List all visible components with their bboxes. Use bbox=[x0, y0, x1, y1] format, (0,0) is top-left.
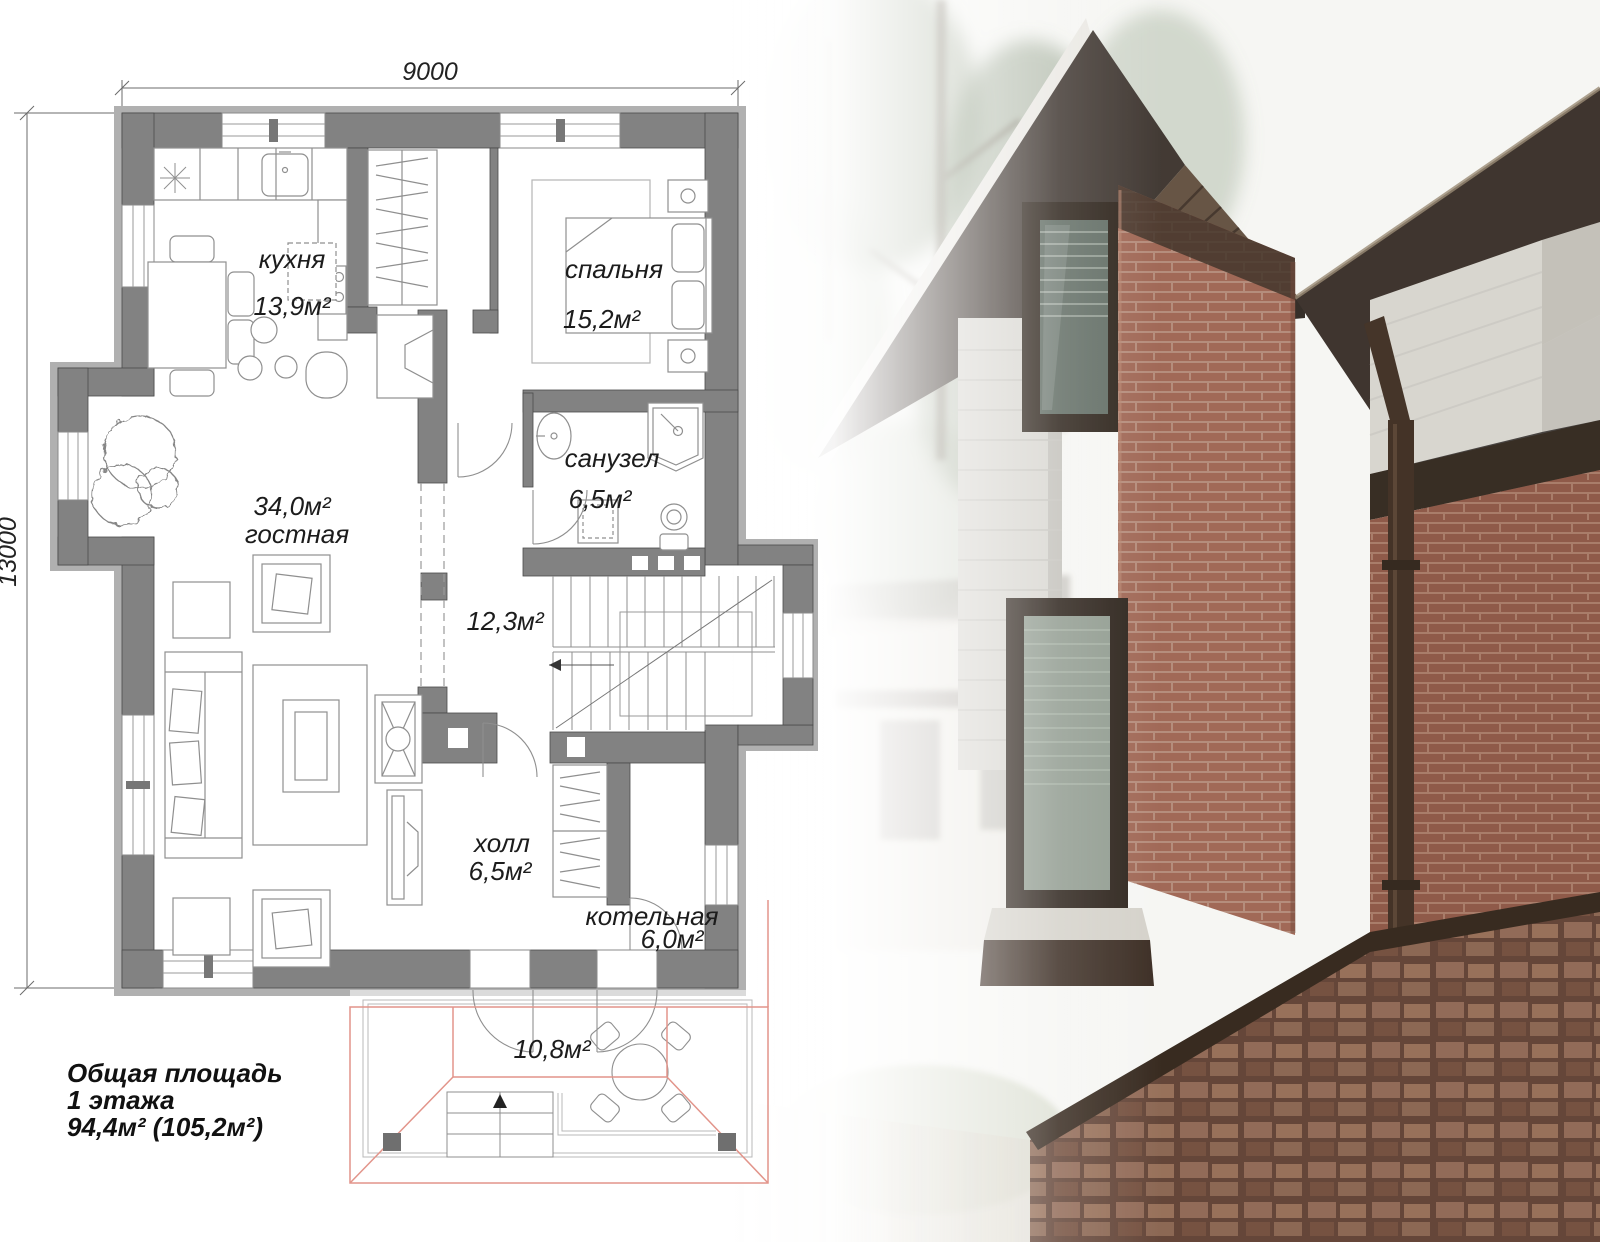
label-kitchen: кухня bbox=[259, 244, 326, 274]
floor-plan-svg: 9000 13000 bbox=[0, 0, 880, 1242]
floor-plan: 9000 13000 bbox=[0, 0, 880, 1242]
label-bedroom: спальня bbox=[565, 254, 663, 284]
armchair bbox=[253, 555, 330, 632]
sofa bbox=[165, 652, 242, 858]
dim-height-label: 13000 bbox=[0, 517, 22, 587]
label-bedroom-area: 15,2м² bbox=[563, 304, 641, 334]
hall-wardrobe bbox=[553, 765, 607, 897]
summary-line1: Общая площадь bbox=[67, 1060, 283, 1087]
bathroom-fixtures bbox=[536, 403, 703, 550]
terrace-steps bbox=[447, 1092, 553, 1157]
terrace-post bbox=[383, 1133, 401, 1151]
dim-width-label: 9000 bbox=[402, 58, 458, 86]
nightstand bbox=[668, 340, 708, 372]
stairs-direction-arrow bbox=[549, 659, 561, 671]
page: 9000 13000 bbox=[0, 0, 1600, 1242]
closet-wardrobe bbox=[368, 150, 437, 398]
label-hall-area: 6,5м² bbox=[469, 856, 533, 886]
summary-line3: 94,4м² (105,2м²) bbox=[67, 1114, 283, 1141]
label-boiler-area: 6,0м² bbox=[641, 924, 705, 954]
label-living: гостная bbox=[245, 519, 349, 549]
side-table bbox=[173, 898, 230, 955]
label-bathroom: санузел bbox=[565, 443, 660, 473]
stair-bay-floor bbox=[738, 565, 783, 725]
label-stairs-area: 12,3м² bbox=[466, 606, 544, 636]
label-hall: холл bbox=[472, 828, 530, 858]
label-kitchen-area: 13,9м² bbox=[253, 291, 331, 321]
toilet bbox=[660, 504, 688, 550]
coffee-table bbox=[253, 665, 367, 845]
label-living-area: 34,0м² bbox=[253, 491, 331, 521]
lamp-symbol bbox=[160, 163, 190, 193]
total-area-summary: Общая площадь 1 этажа 94,4м² (105,2м²) bbox=[67, 1060, 283, 1141]
fireplace bbox=[375, 695, 422, 783]
label-bathroom-area: 6,5м² bbox=[569, 484, 633, 514]
armchair bbox=[253, 890, 330, 967]
label-terrace-area: 10,8м² bbox=[513, 1034, 591, 1064]
terrace-post bbox=[718, 1133, 736, 1151]
side-table bbox=[173, 582, 230, 638]
nightstand bbox=[668, 180, 708, 212]
summary-line2: 1 этажа bbox=[67, 1087, 283, 1114]
kitchen-bar bbox=[306, 352, 347, 398]
tv-bench bbox=[387, 790, 422, 905]
plant bbox=[92, 416, 178, 525]
